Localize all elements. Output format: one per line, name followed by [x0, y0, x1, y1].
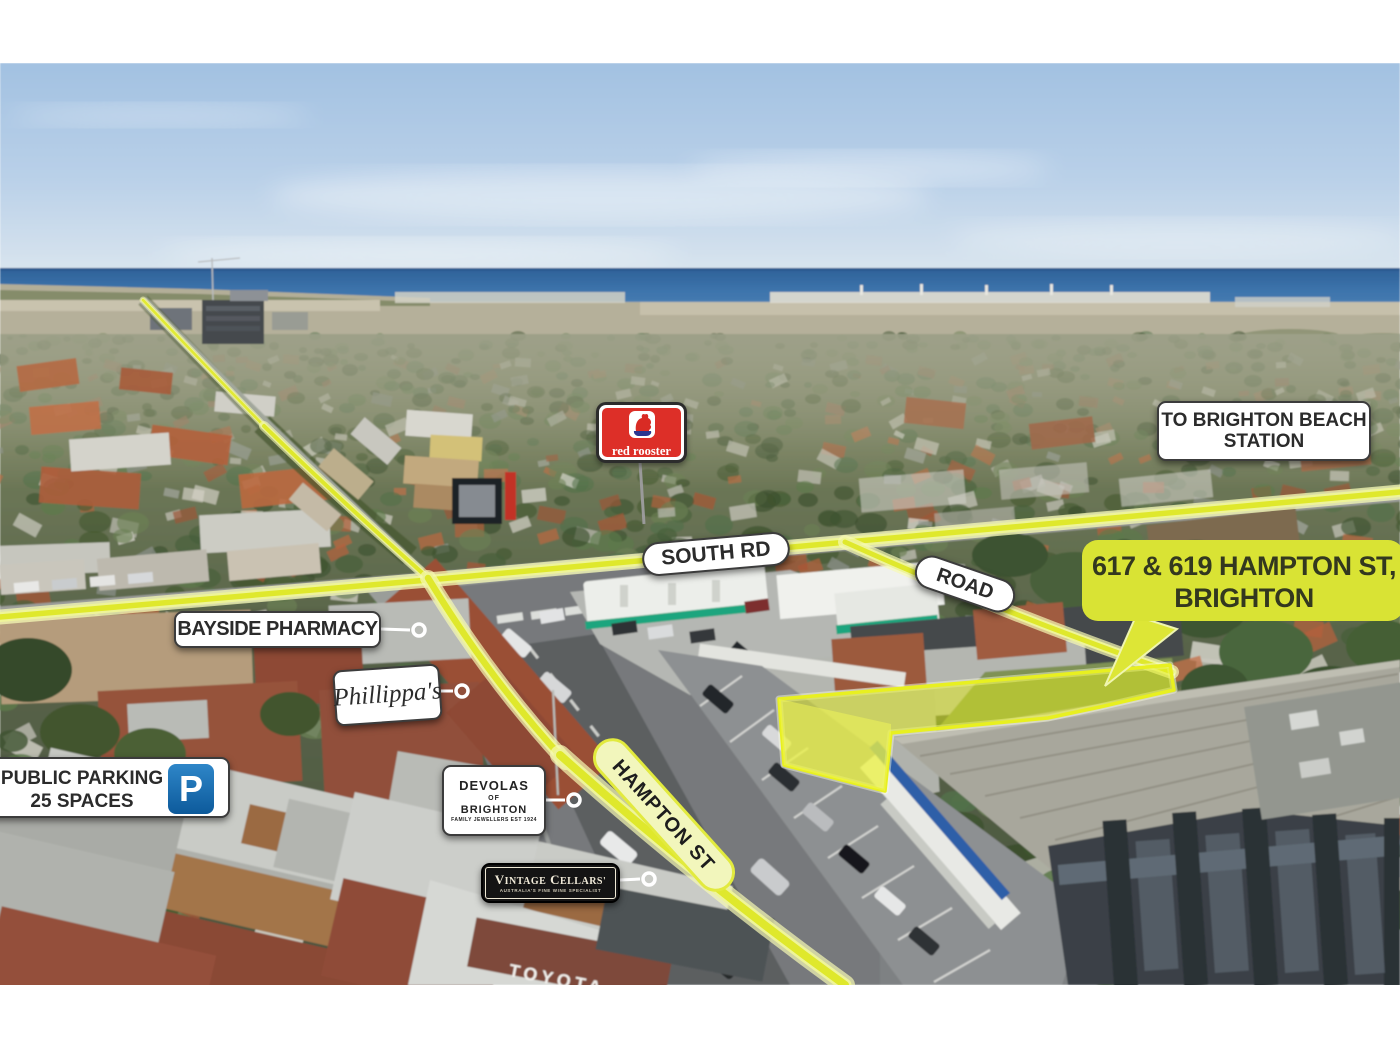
svg-text:BRIGHTON: BRIGHTON	[1174, 583, 1314, 613]
svg-text:617 & 619 HAMPTON ST,: 617 & 619 HAMPTON ST,	[1092, 551, 1396, 581]
